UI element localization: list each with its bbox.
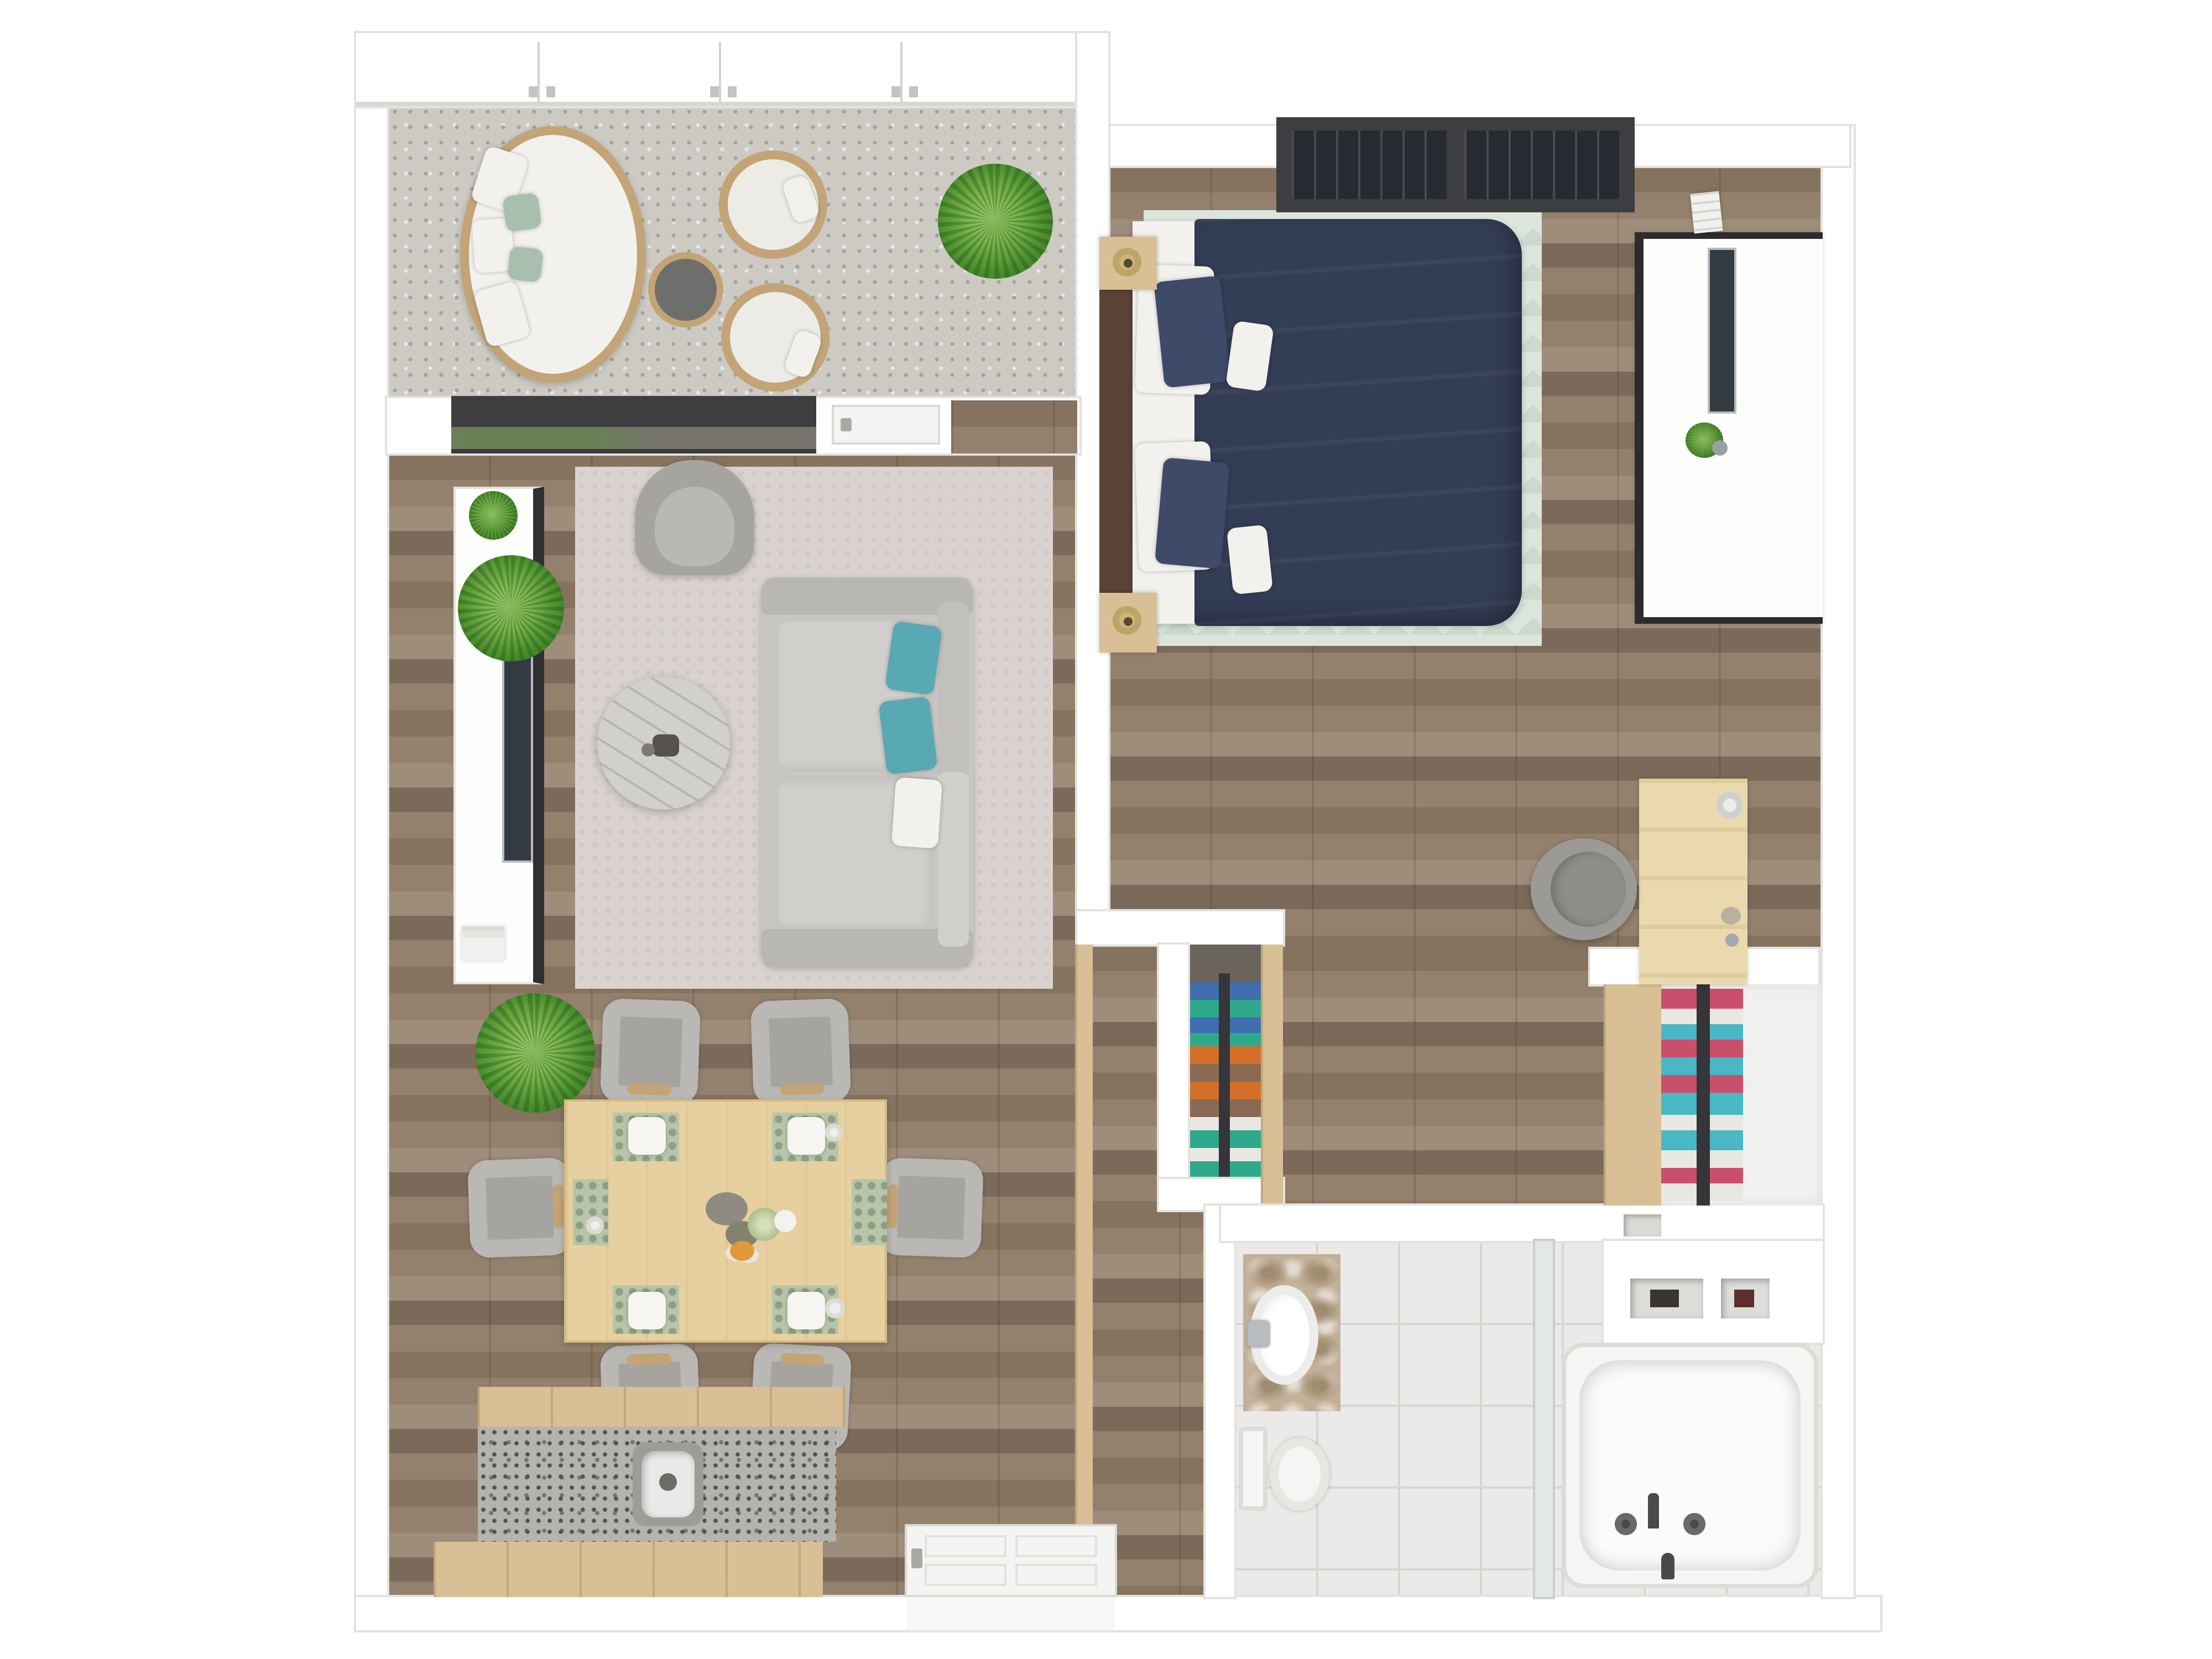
armchair-seat [655,487,734,566]
glass-clamp-icon [909,86,918,97]
plate [628,1117,666,1155]
door-handle-icon [841,418,852,431]
nightstand-lamp [1113,248,1141,276]
glass-clamp-icon [728,86,737,97]
plate [787,1292,825,1329]
door-panel [925,1564,1006,1586]
console-books [462,927,504,960]
outer-wall-bottom [356,1597,1880,1630]
chair-arm [552,1184,565,1229]
balcony-swing-door-leaf [834,407,938,442]
balcony-chair [719,150,827,259]
glass-clamp-icon [891,86,900,97]
cup [825,1124,843,1141]
sofa-teal-pillow [885,620,942,695]
chair-arm [627,1083,671,1096]
small-bowl [774,1210,796,1232]
door-panel [925,1535,1006,1557]
glass-mullion [538,42,540,102]
armchair [635,460,754,575]
closet-right-wood-panel [1604,984,1661,1206]
media-unit-vase [1712,440,1728,456]
sofa-teal-pillow [878,696,937,775]
balcony-side-table [648,252,723,327]
dining-chair [467,1157,572,1258]
coffee-table [597,677,730,810]
window-pane [1292,131,1447,199]
lamp-center [1124,617,1133,626]
table-decor [641,743,655,757]
fruit-bowl [730,1241,754,1261]
chair-pillow [781,174,821,225]
cup [586,1217,604,1234]
balcony-chair [721,283,830,392]
kitchen-island [434,1542,823,1597]
bed-headboard [1099,285,1133,595]
living-tv [502,641,533,863]
chair-arm [780,1353,825,1366]
apartment-plan [0,0,2212,1659]
glass-clamp-icon [546,86,555,97]
hall-wall [1077,911,1283,945]
bathroom-vanity [1243,1254,1340,1411]
door-handle-icon [911,1548,922,1568]
bathtub-shelf [1604,1241,1823,1343]
bed-pillow-navy [1155,457,1230,569]
closet-middle-left-wall [1159,945,1188,1210]
glass-mullion [719,42,721,102]
window-pane [1464,131,1619,199]
balcony-sliding-door-frame [451,396,816,427]
tub-spout-icon [1648,1493,1659,1528]
entry-wood-wall [1075,945,1093,1597]
cup [825,1298,845,1318]
shelf-niche [1630,1279,1703,1318]
shelf-niche [1721,1279,1770,1318]
nightstand-lamp [1113,606,1141,635]
placemat [573,1179,608,1245]
plate [787,1117,825,1155]
closet-right-rail [1697,980,1710,1206]
kitchen-cabinet-run [478,1387,845,1427]
toilet-tank [1239,1427,1267,1511]
outer-wall-left [356,33,387,1630]
dining-chair [750,998,851,1105]
sofa-white-pillow [891,777,942,849]
desk-item [1725,933,1739,947]
entry-threshold [907,1597,1115,1630]
bedroom-window-frame [1276,117,1635,212]
lamp-center [1124,259,1133,268]
faucet-icon [659,1473,677,1491]
kitchen-counter [478,1427,836,1542]
dining-table [564,1099,887,1343]
chair-arm [627,1353,671,1366]
balcony-sliding-door-glass [451,427,816,453]
living-plant [458,555,564,661]
glass-clamp-icon [529,86,538,97]
sink-faucet-icon [1248,1321,1270,1347]
door-panel [1015,1564,1097,1586]
shower-screen [1535,1241,1553,1597]
outer-wall-right [1823,126,1854,1597]
dining-chair [879,1157,984,1258]
desk [1639,779,1747,984]
bed-accent-cushion [1227,525,1273,595]
tub-handle-icon [1683,1513,1705,1535]
chair-pillow [783,328,823,379]
glass-clamp-icon [710,86,719,97]
desk-lamp [1717,792,1743,818]
desk-chair [1531,838,1637,940]
entry-door-leaf [907,1526,1115,1595]
sofa [761,577,973,967]
balcony-doorway-floor [951,400,1077,453]
ac-vent [1690,191,1723,233]
bathroom-left-wall [1206,1206,1234,1597]
tub-handle-icon [1615,1513,1637,1535]
bedroom-tv [1708,248,1736,414]
bathroom-top-wall [1221,1206,1823,1241]
door-panel [1015,1535,1097,1557]
table-decor [653,734,679,757]
bathtub [1562,1343,1818,1588]
closet-middle-rail [1219,973,1230,1188]
stone-vase [706,1192,748,1225]
daybed-sage-pillow [502,192,542,232]
kitchen-sink [633,1442,703,1526]
balcony-glass-wall [356,33,1084,106]
hand-shower-icon [1661,1553,1674,1579]
bathtub-basin [1579,1360,1801,1571]
niche-item [1650,1290,1679,1307]
chair-arm [886,1184,899,1229]
niche-item [1734,1290,1754,1307]
balcony-daybed [460,126,646,383]
nightstand [1099,237,1157,290]
toilet-bowl [1270,1438,1329,1511]
floor-plan [0,0,2212,1659]
wall-niche [1624,1214,1661,1237]
dining-chair [600,998,701,1105]
dining-plant [476,993,595,1113]
plate [628,1292,666,1329]
console-plant [469,491,518,540]
sofa-back-cushions [938,602,969,947]
desk-chair-seat [1551,852,1626,927]
daybed-sage-pillow [507,246,544,283]
chair-arm [780,1083,825,1096]
closet-middle-wood-panel [1261,945,1283,1210]
balcony-plant [938,164,1053,279]
glass-mullion [900,42,902,102]
placemat [852,1179,887,1245]
desk-item [1721,907,1741,925]
nightstand [1099,593,1157,653]
bed-pillow-navy [1154,275,1230,388]
